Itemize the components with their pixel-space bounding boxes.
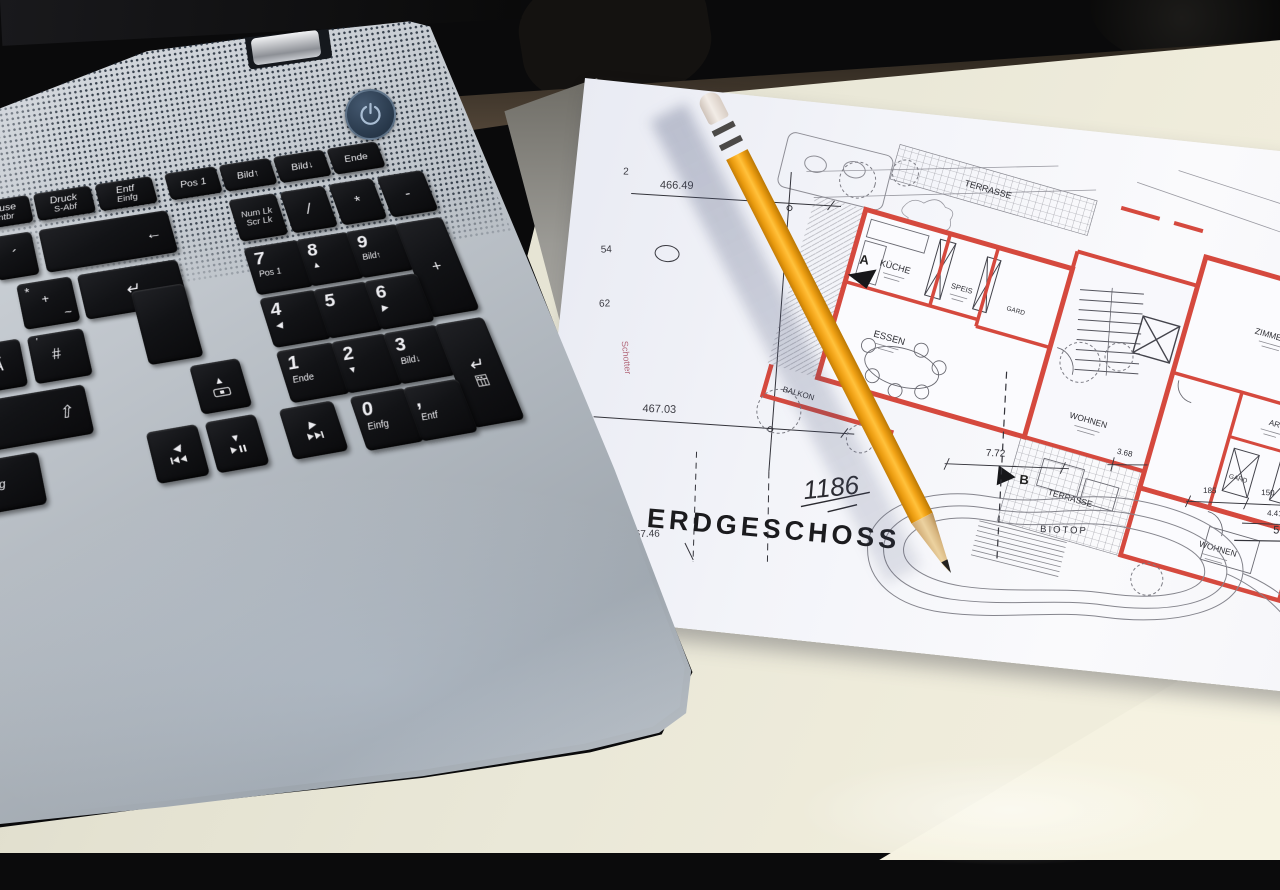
touchpad-toggle-icon bbox=[212, 386, 231, 397]
key-pause: Pause Untbr bbox=[0, 195, 34, 231]
dim-4-41: 4.41 bbox=[1267, 509, 1280, 519]
key-enter-stem bbox=[131, 283, 204, 365]
key-arrow-left: ◀ bbox=[146, 424, 211, 484]
key-arrow-up: ▲ bbox=[189, 358, 252, 415]
key-hash: ' # bbox=[27, 328, 93, 384]
power-icon bbox=[358, 102, 383, 127]
pencil-lead bbox=[941, 559, 954, 575]
key-numpad-divide: / bbox=[279, 185, 338, 233]
play-pause-icon bbox=[229, 444, 247, 455]
key-arrow-right: ▶ bbox=[279, 400, 349, 460]
elevation-2: 2 bbox=[623, 167, 629, 178]
label-biotop: BIOTOP bbox=[1040, 524, 1088, 537]
site-note-schotter: Schotter bbox=[620, 340, 633, 374]
key-shift: ⇧ bbox=[0, 384, 95, 460]
elevation-467-03: 467.03 bbox=[642, 403, 676, 416]
key-strg: Strg bbox=[0, 452, 48, 521]
dim-5-20: 5.20 bbox=[1273, 524, 1280, 537]
key-numlock: Num Lk Scr Lk bbox=[228, 193, 289, 242]
marker-b: B bbox=[1019, 472, 1030, 488]
survey-circle bbox=[654, 244, 680, 262]
key-acute: ´ bbox=[0, 231, 40, 280]
power-button bbox=[345, 89, 396, 140]
key-plus-star-tilde: * + ~ bbox=[16, 276, 81, 330]
dim-185: 185 bbox=[1203, 486, 1217, 495]
calc-grid-icon bbox=[474, 374, 490, 387]
elevation-62: 62 bbox=[599, 298, 611, 309]
key-arrow-down: ▼ bbox=[204, 414, 269, 474]
key-ae: Ä bbox=[0, 338, 28, 394]
table-highlight bbox=[780, 750, 1240, 870]
next-track-icon bbox=[305, 431, 325, 442]
dim-7-72: 7.72 bbox=[986, 448, 1006, 460]
previous-track-icon bbox=[169, 454, 189, 465]
elevation-54: 54 bbox=[601, 244, 613, 255]
dim-150: 150 bbox=[1261, 488, 1275, 497]
key-numpad-minus: - bbox=[376, 170, 438, 218]
